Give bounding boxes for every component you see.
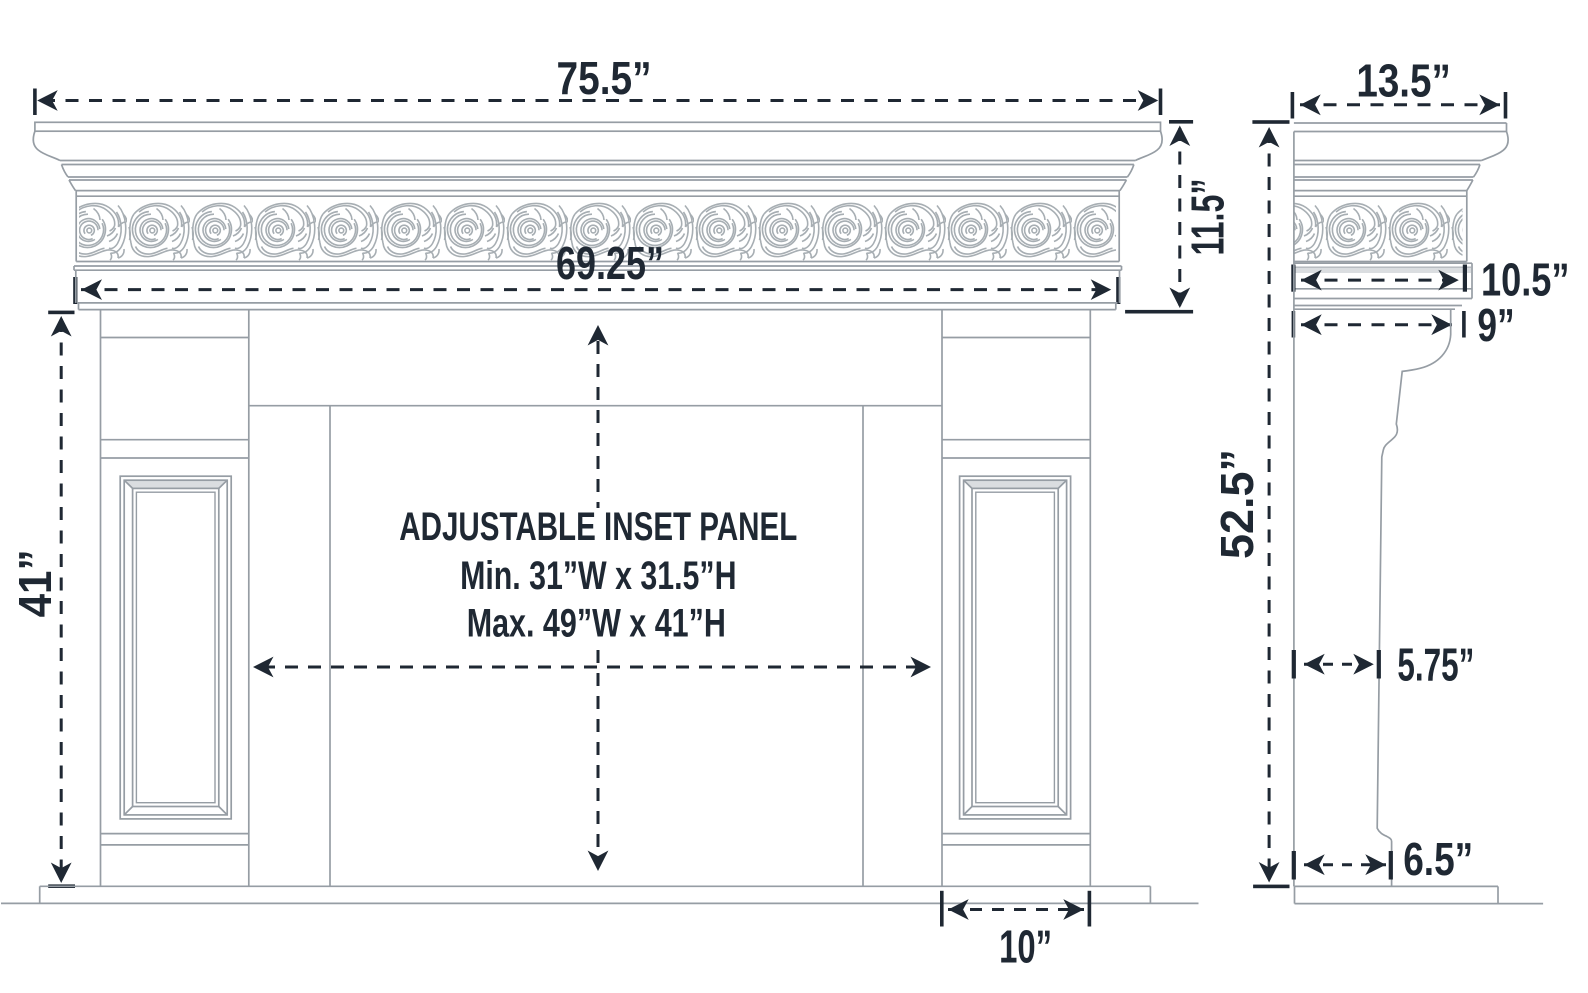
svg-text:52.5”: 52.5” xyxy=(1211,449,1263,559)
svg-text:69.25”: 69.25” xyxy=(556,237,664,289)
svg-text:9”: 9” xyxy=(1477,299,1514,351)
svg-text:ADJUSTABLE INSET PANEL: ADJUSTABLE INSET PANEL xyxy=(399,505,797,549)
svg-text:Max. 49”W x 41”H: Max. 49”W x 41”H xyxy=(467,602,726,646)
svg-text:Min. 31”W x 31.5”H: Min. 31”W x 31.5”H xyxy=(460,554,736,598)
svg-text:11.5”: 11.5” xyxy=(1181,179,1233,256)
svg-text:13.5”: 13.5” xyxy=(1356,54,1451,106)
svg-text:41”: 41” xyxy=(9,549,61,617)
svg-text:10”: 10” xyxy=(999,921,1052,973)
svg-text:75.5”: 75.5” xyxy=(557,52,652,104)
svg-text:5.75”: 5.75” xyxy=(1397,639,1474,691)
svg-text:10.5”: 10.5” xyxy=(1481,254,1570,306)
svg-text:6.5”: 6.5” xyxy=(1403,833,1473,885)
